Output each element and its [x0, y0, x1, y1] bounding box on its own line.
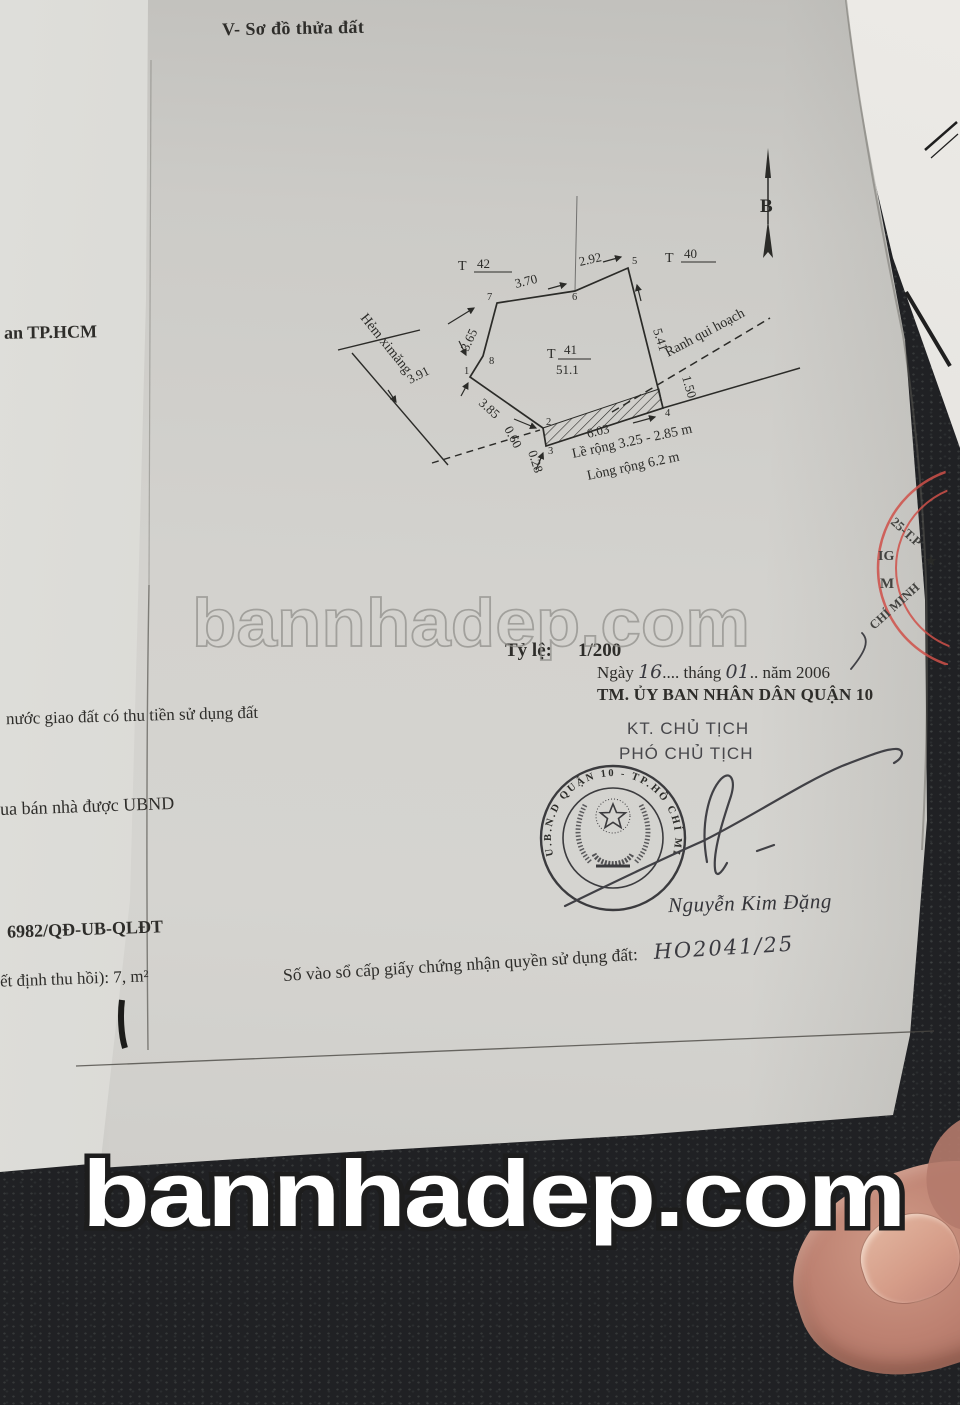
left-edge-fragment: an TP.HCM [4, 321, 97, 344]
photo-canvas: { "page": { "title": "V- Sơ đồ thửa đất"… [0, 0, 960, 1280]
bottom-watermark: bannhadep.com [0, 1118, 960, 1268]
signer-name: Nguyễn Kim Đặng [668, 889, 832, 918]
issuing-authority: TM. ỦY BAN NHÂN DÂN QUẬN 10 [597, 685, 873, 705]
signer-title: PHÓ CHỦ TỊCH [619, 744, 753, 764]
center-watermark: bannhadep.com [178, 566, 778, 676]
svg-text:bannhadep.com: bannhadep.com [192, 585, 750, 661]
year-value: 2006 [796, 663, 830, 682]
section-title: V- Sơ đồ thửa đất [222, 17, 365, 40]
svg-text:★: ★ [925, 553, 937, 568]
svg-text:bannhadep.com: bannhadep.com [82, 1141, 904, 1246]
deputy-for-title: KT. CHỦ TỊCH [627, 719, 749, 739]
